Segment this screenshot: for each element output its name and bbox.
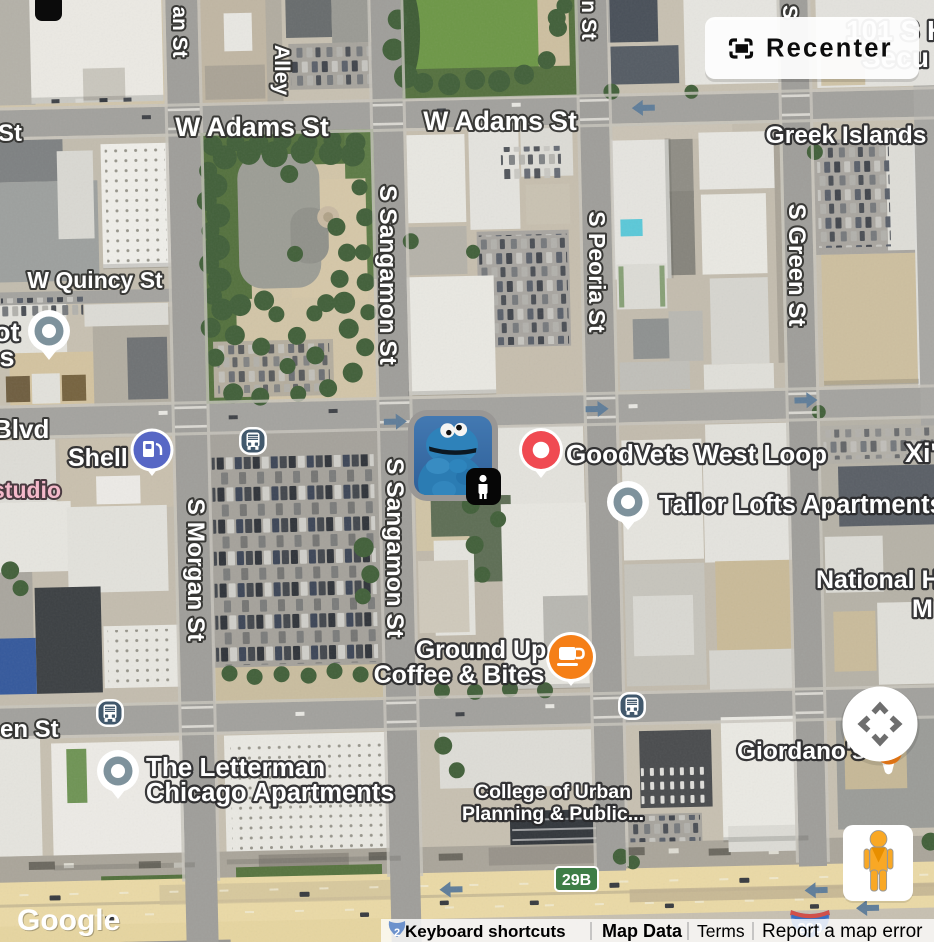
svg-text:W Adams St: W Adams St (175, 112, 329, 142)
svg-text:Coffee & Bites: Coffee & Bites (374, 661, 545, 689)
svg-text:W Quincy St: W Quincy St (27, 267, 163, 293)
svg-text:studio: studio (0, 477, 61, 503)
svg-text:Google: Google (17, 904, 120, 937)
svg-text:29B: 29B (562, 872, 591, 889)
svg-text:S Green St: S Green St (783, 204, 810, 327)
svg-text:Planning & Public...: Planning & Public... (462, 803, 644, 825)
svg-text:GoodVets West Loop: GoodVets West Loop (566, 439, 827, 469)
svg-text:College of Urban: College of Urban (475, 781, 631, 803)
svg-text:S Peoria St: S Peoria St (584, 211, 610, 333)
svg-text:The Letterman: The Letterman (146, 752, 325, 782)
svg-text:Keyboard shortcuts: Keyboard shortcuts (405, 922, 566, 941)
svg-text:W Adams St: W Adams St (423, 106, 577, 136)
svg-text:Blvd: Blvd (0, 414, 49, 444)
svg-text:S: S (778, 5, 801, 19)
svg-text:Terms: Terms (697, 921, 745, 941)
svg-text:Report a map error: Report a map error (762, 921, 923, 942)
svg-text:Ground Up: Ground Up (416, 636, 547, 664)
svg-text:n St: n St (577, 0, 600, 40)
svg-text:an St: an St (168, 6, 191, 57)
svg-text:M: M (912, 595, 933, 623)
svg-text:Shell: Shell (68, 444, 128, 472)
svg-text:St: St (0, 120, 22, 147)
svg-text:Recenter: Recenter (766, 35, 893, 63)
svg-text:Greek Islands: Greek Islands (766, 122, 927, 149)
svg-text:National H: National H (816, 566, 934, 594)
svg-text:Xi'a: Xi'a (905, 438, 934, 468)
svg-text:ls: ls (0, 342, 15, 372)
svg-text:en St: en St (0, 716, 59, 743)
svg-text:Alley: Alley (270, 45, 293, 96)
svg-text:S Morgan St: S Morgan St (182, 499, 209, 642)
svg-text:Tailor Lofts Apartments: Tailor Lofts Apartments (659, 491, 934, 519)
svg-text:S Sangamon St: S Sangamon St (374, 185, 401, 365)
svg-text:S Sangamon St: S Sangamon St (381, 458, 408, 638)
svg-text:Chicago Apartments: Chicago Apartments (146, 779, 394, 807)
svg-text:Map Data: Map Data (602, 921, 683, 941)
svg-text:2: 2 (394, 927, 400, 939)
